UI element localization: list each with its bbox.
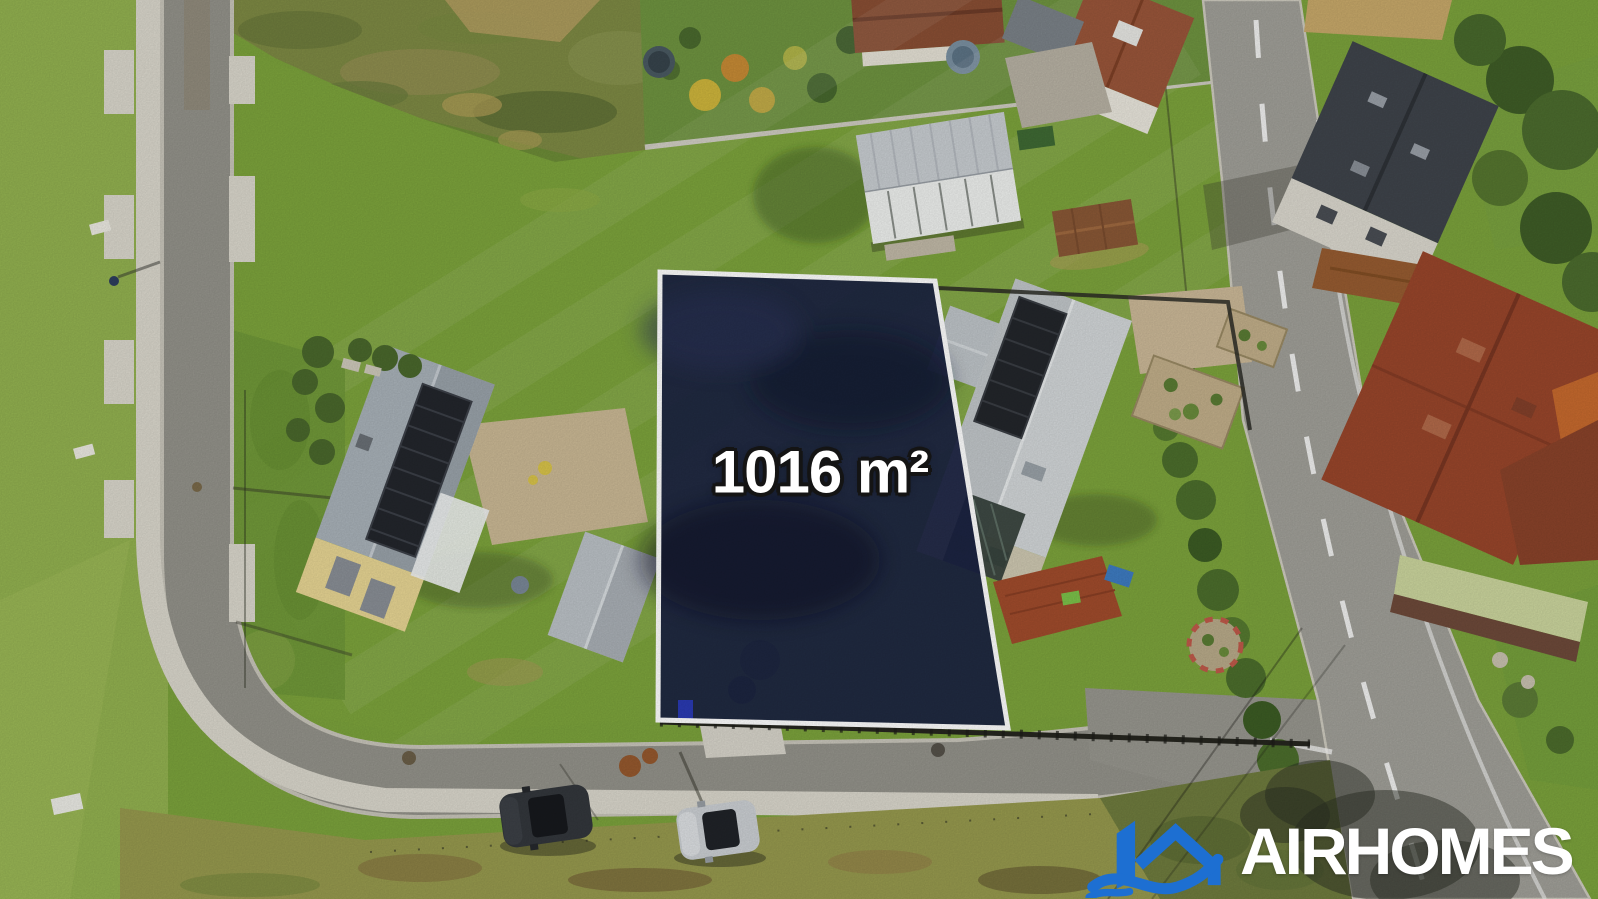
aerial-listing-photo: 1016 m² AIRHOMES [0,0,1598,899]
plot-area-label: 1016 m² [712,438,928,507]
house-with-wave-icon [1084,806,1234,898]
airhomes-logo-text: AIRHOMES [1240,818,1572,884]
airhomes-logo: AIRHOMES [1084,806,1572,898]
